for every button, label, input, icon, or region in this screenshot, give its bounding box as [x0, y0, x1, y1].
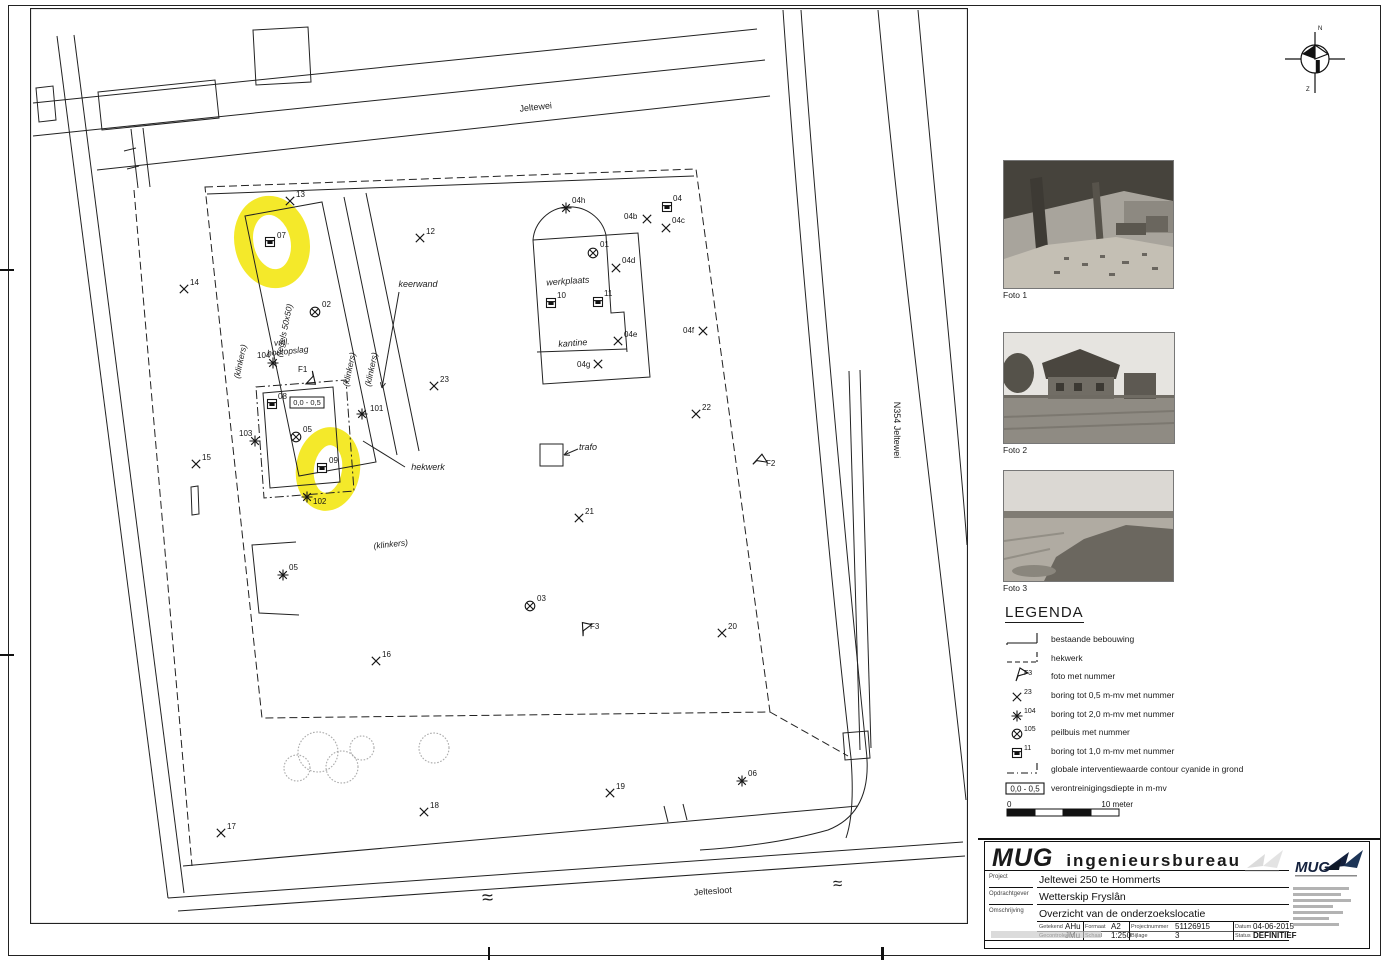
fvalue-formaat: A2: [1111, 922, 1121, 931]
marker-label: 18: [430, 801, 439, 810]
marker-x-15: [192, 460, 200, 468]
plan-label: werkplaats: [546, 274, 590, 287]
marker-label: 04g: [577, 360, 590, 369]
marker-label: 23: [440, 375, 449, 384]
marker-label: 102: [313, 497, 327, 506]
svg-text:0: 0: [1007, 800, 1012, 809]
marker-label: 11: [604, 289, 613, 298]
plan-label: keerwand: [398, 279, 438, 289]
marker-label: 101: [370, 404, 384, 413]
svg-text:10 meter: 10 meter: [1101, 800, 1133, 809]
north-label-n: N: [1318, 26, 1322, 32]
legend-item-foto: F3 foto met nummer: [1005, 667, 1377, 686]
marker-label: 09: [329, 456, 338, 465]
legend-symbol-boring-20: 104: [1005, 705, 1051, 723]
rule: [1233, 922, 1234, 940]
company-name: MUG: [992, 844, 1053, 872]
plan-label: (klinkers): [341, 351, 358, 387]
plan-label: hekwerk: [411, 462, 445, 472]
plan-label: Jeltesloot: [693, 885, 732, 898]
flabel-getekend: Getekend: [1039, 924, 1063, 930]
svg-text:23: 23: [1024, 689, 1032, 696]
rule: [985, 940, 1289, 941]
marker-label: F2: [766, 459, 776, 468]
marker-label: 14: [190, 278, 199, 287]
fold-mark: [881, 947, 884, 960]
marker-sq-04: [663, 203, 672, 212]
marker-label: 06: [748, 769, 757, 778]
field-value-opdrachtgever: Wetterskip Fryslân: [1039, 891, 1126, 903]
leader-lines: [363, 292, 578, 467]
marker-label: 103: [239, 429, 253, 438]
marker-x-22: [692, 410, 700, 418]
fvalue-status: DEFINITIEF: [1253, 931, 1297, 940]
marker-x-16: [372, 657, 380, 665]
marker-sq-07: [266, 238, 275, 247]
marker-label: 04: [673, 194, 682, 203]
legend-item-boring-10: 11 boring tot 1,0 m-mv met nummer: [1005, 742, 1377, 761]
marker-x-04f: [699, 327, 707, 335]
marker-label: F1: [298, 365, 308, 374]
legend-item-boring-05: 23 boring tot 0,5 m-mv met nummer: [1005, 686, 1377, 705]
legend-symbol-boring-10: 11: [1005, 742, 1051, 760]
fvalue-datum: 04-06-2015: [1253, 922, 1294, 931]
marker-label: 12: [426, 227, 435, 236]
rule: [989, 904, 1033, 905]
marker-label: 21: [585, 507, 594, 516]
scan-smudge: [991, 931, 1101, 938]
marker-label: 22: [702, 403, 711, 412]
title-block: MUGingenieursbureau Project Jeltewei 250…: [984, 841, 1370, 949]
site-plan-drawing: 12131415161718192021222304b04c04d04e04f0…: [30, 8, 968, 924]
flabel-datum: Datum: [1235, 924, 1251, 930]
marker-x-04b: [643, 215, 651, 223]
plan-label: kantine: [558, 337, 588, 349]
legend-symbol-fence: [1005, 649, 1051, 667]
depth-box-label: 0,0 - 0,5: [293, 398, 321, 407]
legend-item-bebouwing: bestaande bebouwing: [1005, 630, 1377, 649]
marker-pb-02: [310, 307, 320, 317]
marker-x-04c: [662, 224, 670, 232]
marker-label: 04e: [624, 330, 638, 339]
fvalue-projectnummer: 51126915: [1175, 922, 1210, 931]
flabel-bijlage: Bijlage: [1131, 933, 1148, 939]
marker-x-04d: [612, 264, 620, 272]
marker-star-04h: [561, 203, 572, 214]
titleblock-top-rule: [978, 838, 1380, 840]
marker-sq-11: [594, 298, 603, 307]
legend-symbol-peilbuis: 105: [1005, 723, 1051, 741]
legend: LEGENDA bestaande bebouwing hekwerk F3 f…: [1005, 604, 1377, 824]
field-label-project: Project: [989, 874, 1008, 880]
flabel-formaat: Formaat: [1085, 924, 1105, 930]
marker-sq-09: [318, 464, 327, 473]
map-frame: [31, 9, 968, 924]
photo-3-caption: Foto 3: [1003, 583, 1027, 593]
legend-symbol-photo-flag: F3: [1005, 667, 1051, 685]
marker-x-19: [606, 789, 614, 797]
legend-item-boring-20: 104 boring tot 2,0 m-mv met nummer: [1005, 704, 1377, 723]
marker-x-12: [416, 234, 424, 242]
rule: [989, 887, 1033, 888]
fold-mark: [488, 947, 490, 960]
photo-1-caption: Foto 1: [1003, 290, 1027, 300]
marker-x-23: [430, 382, 438, 390]
marker-label: 04h: [572, 196, 585, 205]
address-lines: [1293, 887, 1365, 926]
plan-label: houtopslag: [266, 344, 309, 358]
plan-linework: [33, 10, 967, 911]
rule: [1129, 922, 1130, 940]
svg-text:F3: F3: [1024, 670, 1032, 677]
field-value-project: Jeltewei 250 te Hommerts: [1039, 874, 1160, 886]
marker-label: 15: [202, 453, 211, 462]
scanned-drawing-sheet: { "north": {"top": "N", "bottom": "Z"}, …: [0, 0, 1389, 960]
marker-label: 20: [728, 622, 737, 631]
marker-star-101: [357, 409, 368, 420]
marker-label: F3: [590, 622, 600, 631]
marker-x-04g: [594, 360, 602, 368]
marker-label: 13: [296, 190, 305, 199]
flabel-status: Status: [1235, 933, 1251, 939]
marker-label: 03: [537, 594, 546, 603]
photo-3-image: [1004, 471, 1173, 581]
marker-x-20: [718, 629, 726, 637]
marker-label: 04d: [622, 256, 635, 265]
svg-text:11: 11: [1024, 745, 1031, 752]
fold-mark: [0, 269, 14, 271]
marker-label: 04b: [624, 212, 638, 221]
tree-symbols: [284, 732, 449, 783]
company-suffix: ingenieursbureau: [1066, 851, 1241, 870]
plan-label: N354 Jeltewei: [892, 402, 902, 459]
fvalue-getekend: AHu: [1065, 922, 1081, 931]
mug-logo-text: MUG: [1295, 859, 1330, 876]
svg-text:0,0 - 0,5: 0,0 - 0,5: [1010, 785, 1040, 794]
marker-x-17: [217, 829, 225, 837]
marker-x-04e: [614, 337, 622, 345]
fold-mark: [0, 654, 14, 656]
legend-symbol-depth-box: 0,0 - 0,5: [1005, 779, 1051, 797]
company-header: MUGingenieursbureau: [992, 844, 1241, 873]
marker-x-18: [420, 808, 428, 816]
field-value-omschrijving: Overzicht van de onderzoekslocatie: [1039, 908, 1205, 920]
legend-symbol-building: [1005, 630, 1051, 648]
photo-1-image: [1004, 161, 1173, 288]
fvalue-bijlage: 3: [1175, 931, 1179, 940]
legend-title: LEGENDA: [1005, 604, 1084, 623]
scale-bar: 010 meter: [1005, 799, 1165, 819]
mug-logo-icon: MUG: [1293, 848, 1365, 878]
marker-label: 07: [277, 231, 286, 240]
marker-label: 04c: [672, 216, 685, 225]
marker-sq-08: [268, 400, 277, 409]
legend-symbol-contour: [1005, 760, 1051, 778]
field-label-opdrachtgever: Opdrachtgever: [989, 891, 1029, 897]
plan-label: trafo: [579, 442, 597, 452]
north-label-z: Z: [1306, 87, 1310, 93]
faint-stamp-logo: [1237, 846, 1289, 876]
marker-pb-01: [588, 248, 598, 258]
flabel-projectnummer: Projectnummer: [1131, 924, 1168, 930]
marker-label: 02: [322, 300, 331, 309]
legend-item-hekwerk: hekwerk: [1005, 649, 1377, 668]
photo-2-caption: Foto 2: [1003, 445, 1027, 455]
marker-star-05: [278, 570, 289, 581]
plan-label: ≈: [481, 887, 494, 910]
legend-item-peilbuis: 105 peilbuis met nummer: [1005, 723, 1377, 742]
marker-label: 08: [278, 392, 287, 401]
marker-x-21: [575, 514, 583, 522]
marker-star-06: [737, 776, 748, 787]
photo-2: [1003, 332, 1175, 444]
rule: [1037, 887, 1289, 888]
marker-pb-05: [291, 432, 301, 442]
plan-label: Jeltewei: [519, 100, 552, 113]
mug-logo-block: MUG: [1293, 848, 1365, 929]
svg-text:104: 104: [1024, 708, 1036, 715]
marker-label: 04f: [683, 326, 695, 335]
marker-label: 05: [303, 425, 312, 434]
marker-label: 01: [600, 240, 609, 249]
legend-item-depth: 0,0 - 0,5 verontreinigingsdiepte in m-mv: [1005, 779, 1377, 798]
marker-label: 17: [227, 822, 236, 831]
marker-x-14: [180, 285, 188, 293]
rule: [1037, 904, 1289, 905]
plan-label: (klinkers): [232, 343, 249, 379]
marker-sq-10: [547, 299, 556, 308]
plan-label: ≈: [832, 874, 843, 894]
marker-label: 05: [289, 563, 298, 572]
legend-item-contour: globale interventiewaarde contour cyanid…: [1005, 760, 1377, 779]
plan-label: (klinkers): [373, 537, 408, 551]
marker-pb-03: [525, 601, 535, 611]
field-label-omschrijving: Omschrijving: [989, 908, 1024, 914]
photo-3: [1003, 470, 1174, 582]
photo-2-image: [1004, 333, 1174, 443]
marker-label: 10: [557, 291, 566, 300]
photo-1: [1003, 160, 1174, 289]
marker-label: 19: [616, 782, 625, 791]
north-arrow: N Z: [1283, 20, 1347, 98]
plan-label: (klinkers): [363, 351, 380, 387]
marker-label: 16: [382, 650, 391, 659]
svg-text:105: 105: [1024, 726, 1036, 733]
legend-symbol-boring-05: 23: [1005, 686, 1051, 704]
